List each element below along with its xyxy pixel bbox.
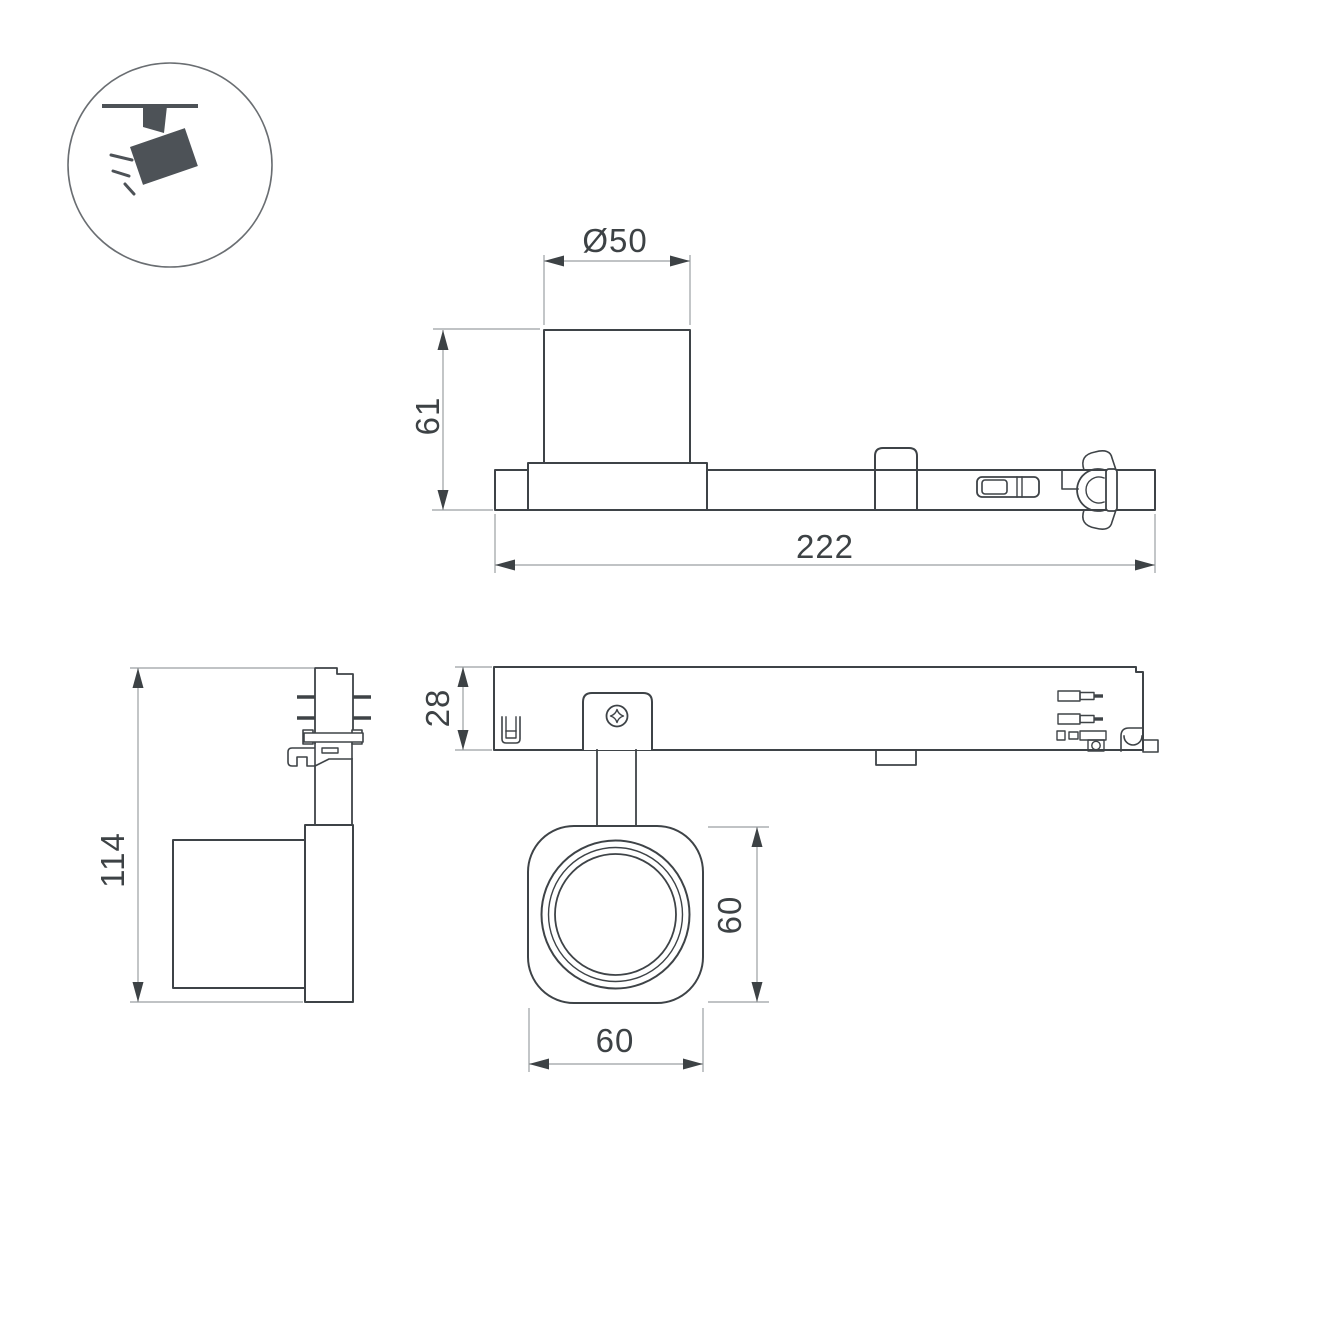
pin-sleeve-1 bbox=[1080, 693, 1094, 700]
dim-label-total-height: 114 bbox=[94, 832, 131, 888]
arrowhead-up bbox=[752, 827, 763, 847]
dim-label-head-width: 60 bbox=[596, 1022, 635, 1059]
corner-half-round bbox=[1124, 736, 1142, 745]
clip-step-notch bbox=[1062, 470, 1078, 489]
snap-bump bbox=[875, 448, 917, 510]
arrowhead-up bbox=[133, 668, 144, 688]
lamp-body-profile bbox=[305, 825, 353, 1002]
rivet-circle bbox=[1092, 741, 1100, 749]
arrowhead-up bbox=[438, 330, 449, 350]
pin-housing-2 bbox=[1058, 714, 1080, 724]
lamp-cylinder bbox=[544, 330, 690, 463]
bottom-bump bbox=[876, 750, 916, 765]
end-view bbox=[173, 668, 371, 1002]
u-clip-inner bbox=[506, 717, 516, 738]
arrowhead-down bbox=[133, 982, 144, 1002]
arrowhead-down bbox=[752, 982, 763, 1002]
arrowhead-left bbox=[495, 560, 515, 571]
adapter-plate bbox=[304, 733, 363, 742]
bracket-hook bbox=[288, 748, 315, 766]
dim-label-height: 61 bbox=[409, 397, 446, 436]
arrowhead-right bbox=[1135, 560, 1155, 571]
clip-c-clamp-inner bbox=[1086, 477, 1104, 503]
small-rect bbox=[1069, 732, 1078, 739]
drawing-svg: Ø50 61 222 bbox=[0, 0, 1331, 1331]
screw-head bbox=[607, 706, 628, 727]
u-clip-outer bbox=[502, 717, 520, 743]
arrowhead-right bbox=[670, 256, 690, 267]
end-tab bbox=[1143, 740, 1158, 752]
arrowhead-right bbox=[683, 1059, 703, 1070]
pin-sleeve-2 bbox=[1080, 716, 1094, 723]
clip-c-clamp-outer bbox=[1077, 469, 1107, 511]
arrowhead-up bbox=[458, 667, 469, 687]
connector-small-parts bbox=[1057, 728, 1143, 751]
mount-block bbox=[528, 463, 707, 510]
arrowhead-down bbox=[438, 490, 449, 510]
clip-wing-bottom bbox=[1083, 510, 1116, 529]
dim-label-diameter: Ø50 bbox=[582, 222, 647, 259]
lamp-head-profile bbox=[173, 840, 305, 988]
side-view bbox=[495, 330, 1155, 529]
small-square bbox=[1057, 731, 1065, 740]
latch-rect bbox=[1080, 731, 1106, 740]
dim-label-head-height: 60 bbox=[711, 896, 748, 935]
clip-jaw-bar bbox=[1106, 469, 1117, 511]
technical-drawing-page: Ø50 61 222 bbox=[0, 0, 1331, 1331]
plan-view bbox=[494, 667, 1158, 1003]
arrowhead-left bbox=[529, 1059, 549, 1070]
dim-label-body-depth: 28 bbox=[419, 689, 456, 728]
side-view-dimensions: Ø50 61 222 bbox=[409, 222, 1155, 573]
pin-housing-1 bbox=[1058, 691, 1080, 701]
bracket-detail bbox=[322, 748, 338, 753]
connector-pins-plan bbox=[1058, 691, 1103, 724]
arrowhead-left bbox=[544, 256, 564, 267]
arrowhead-down bbox=[458, 730, 469, 750]
track-spotlight-icon bbox=[68, 63, 272, 267]
dim-label-length: 222 bbox=[796, 528, 854, 565]
clip-wing-top bbox=[1083, 451, 1116, 470]
